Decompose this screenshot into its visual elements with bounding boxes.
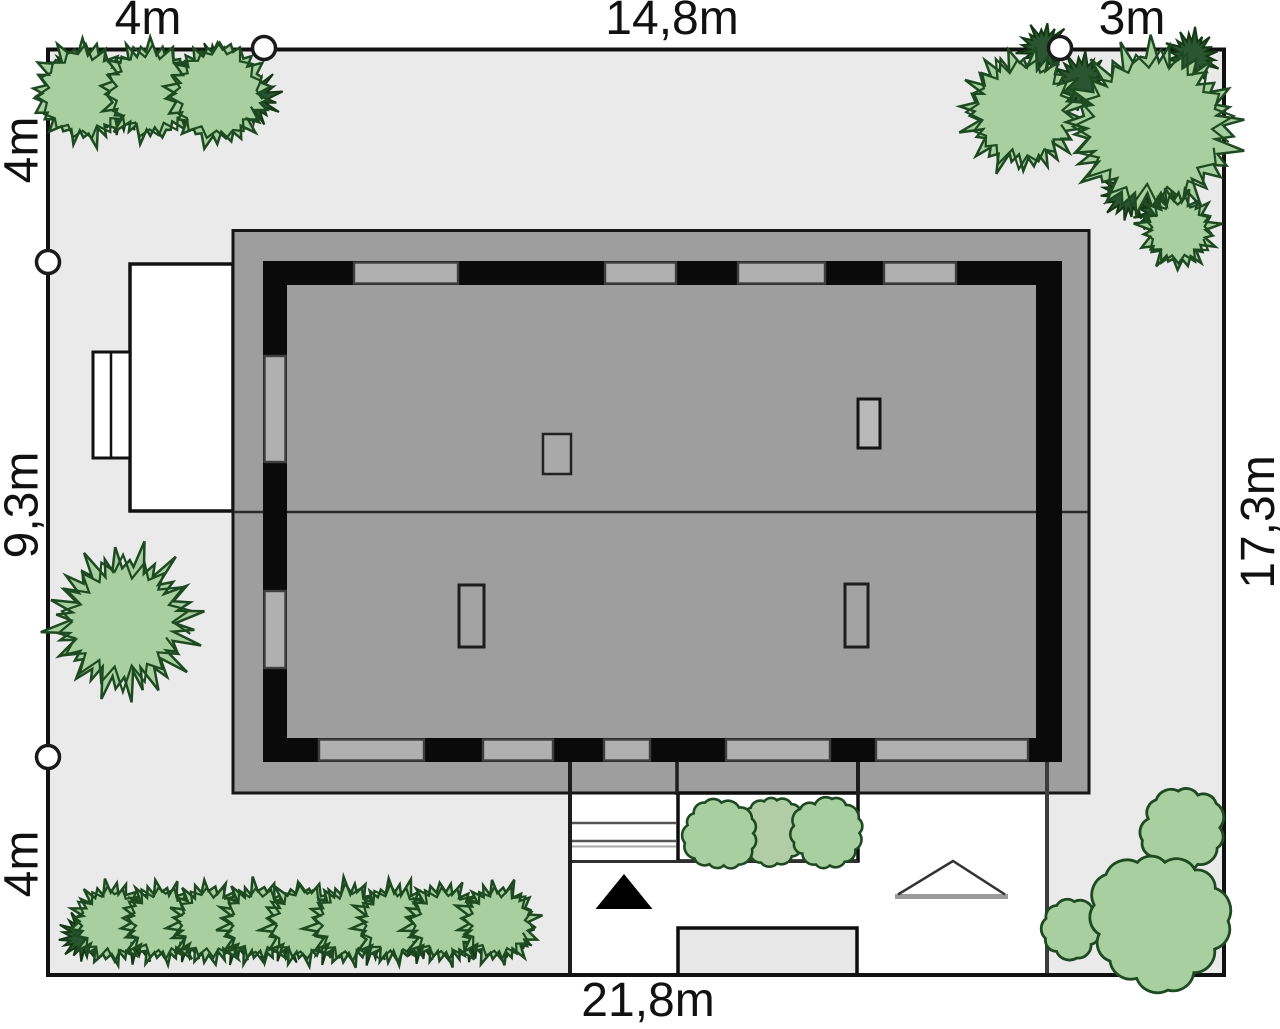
svg-text:4m: 4m [0, 117, 49, 184]
svg-text:17,3m: 17,3m [1232, 455, 1280, 588]
svg-text:21,8m: 21,8m [581, 974, 714, 1027]
svg-text:3m: 3m [1099, 0, 1166, 45]
svg-text:14,8m: 14,8m [605, 0, 738, 45]
svg-text:4m: 4m [115, 0, 182, 45]
svg-text:9,3m: 9,3m [0, 452, 49, 559]
svg-text:4m: 4m [0, 831, 49, 898]
